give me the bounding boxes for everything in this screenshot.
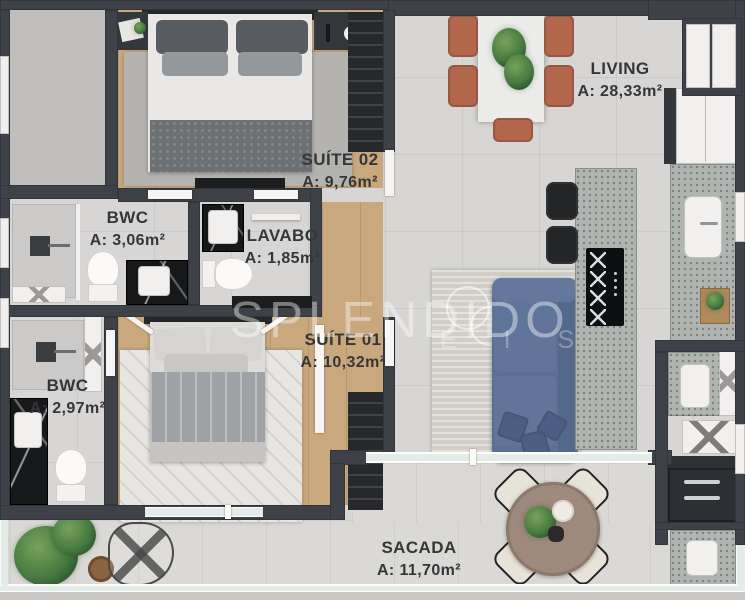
fridge bbox=[676, 88, 736, 164]
suite02-pillow-small bbox=[162, 52, 228, 76]
bwc-bottom-door bbox=[106, 330, 115, 376]
clothes-rack-bar bbox=[684, 480, 720, 484]
entry-door-panel bbox=[712, 24, 736, 88]
wall bbox=[0, 185, 118, 199]
suite02-area: A: 9,76m² bbox=[285, 172, 395, 194]
balcony-plant-small bbox=[52, 514, 96, 556]
wall bbox=[655, 340, 745, 352]
suite02-wardrobe bbox=[348, 12, 383, 152]
barbecue-sink bbox=[686, 540, 718, 576]
nightstand-decor bbox=[326, 24, 330, 42]
window bbox=[0, 298, 9, 348]
window bbox=[0, 218, 9, 268]
window bbox=[735, 192, 745, 242]
watermark-partial-text: E I S bbox=[440, 326, 594, 355]
bwc-top-name: BWC bbox=[75, 206, 180, 230]
toilet bbox=[86, 250, 120, 288]
table-plate bbox=[552, 500, 574, 522]
toilet-tank bbox=[88, 284, 118, 302]
wall bbox=[655, 522, 745, 530]
suite01-folded-blanket bbox=[150, 442, 265, 462]
shower-arm-2 bbox=[54, 350, 76, 353]
wall bbox=[188, 202, 200, 305]
balcony-railing-left bbox=[0, 520, 8, 586]
sacada-area: A: 11,70m² bbox=[360, 560, 478, 582]
dining-chair bbox=[448, 65, 478, 107]
entry-door-panel bbox=[686, 24, 710, 88]
label-bwc-bottom: BWC A: 2,97m² bbox=[15, 374, 120, 420]
dining-chair bbox=[493, 118, 533, 142]
suite01-door-handle bbox=[225, 505, 231, 519]
dining-plant bbox=[504, 54, 534, 90]
suite01-balcony-door bbox=[145, 507, 263, 517]
lavabo-name: LAVABO bbox=[230, 224, 335, 248]
burner bbox=[590, 309, 606, 325]
dining-chair bbox=[448, 15, 478, 57]
label-lavabo: LAVABO A: 1,85m² bbox=[230, 224, 335, 270]
wall bbox=[648, 0, 745, 20]
suite02-pillow bbox=[236, 20, 308, 54]
burner bbox=[590, 290, 606, 306]
clothes-rack-closet bbox=[668, 468, 738, 522]
neighbor-unit-area bbox=[0, 0, 118, 199]
kitchen-faucet bbox=[700, 222, 718, 225]
suite02-pillow-small bbox=[238, 52, 302, 76]
suite01-cushions bbox=[164, 354, 248, 374]
vanity-sink bbox=[138, 266, 170, 296]
shower-head bbox=[30, 236, 50, 256]
laundry-sink bbox=[680, 364, 710, 408]
dining-chair bbox=[544, 15, 574, 57]
clothes-rack-bar bbox=[684, 496, 720, 500]
label-suite02: SUÍTE 02 A: 9,76m² bbox=[285, 148, 395, 194]
wall bbox=[388, 0, 650, 16]
bar-stool bbox=[546, 226, 578, 264]
toilet-tank-2 bbox=[56, 484, 86, 502]
fridge-door-split bbox=[705, 90, 706, 162]
living-name: LIVING bbox=[560, 57, 680, 81]
cooktop-knobs bbox=[614, 272, 617, 275]
sacada-name: SACADA bbox=[360, 536, 478, 560]
living-area: A: 28,33m² bbox=[560, 81, 680, 103]
toilet-2 bbox=[54, 448, 88, 486]
sliding-door-handle bbox=[470, 449, 476, 465]
table-decor bbox=[548, 526, 564, 542]
ironing-board bbox=[719, 346, 736, 416]
balcony-edge bbox=[0, 592, 745, 600]
wall bbox=[105, 10, 118, 192]
suite01-area: A: 10,32m² bbox=[288, 352, 398, 374]
bwc-top-door bbox=[148, 190, 192, 199]
window bbox=[0, 56, 9, 134]
wall bbox=[655, 352, 668, 545]
burner bbox=[590, 271, 606, 287]
label-sacada: SACADA A: 11,70m² bbox=[360, 536, 478, 582]
bwc-bottom-name: BWC bbox=[15, 374, 120, 398]
shower-arm bbox=[48, 244, 70, 247]
towel-bar bbox=[252, 214, 300, 220]
window bbox=[735, 424, 745, 474]
suite02-name: SUÍTE 02 bbox=[285, 148, 395, 172]
kitchen-sink bbox=[684, 196, 722, 258]
wall bbox=[330, 463, 345, 520]
bwc-top-area: A: 3,06m² bbox=[75, 230, 180, 252]
bwc-bottom-area: A: 2,97m² bbox=[15, 398, 120, 420]
sliding-glass-door bbox=[366, 452, 652, 463]
burner bbox=[590, 252, 606, 268]
suite01-duvet bbox=[150, 372, 265, 444]
nightstand-plant bbox=[134, 22, 146, 34]
label-living: LIVING A: 28,33m² bbox=[560, 57, 680, 103]
shower-drain-grate bbox=[12, 286, 66, 303]
balcony-railing-right bbox=[736, 545, 745, 586]
balcony-railing bbox=[0, 584, 745, 592]
shower-head-2 bbox=[36, 342, 56, 362]
lavabo-area: A: 1,85m² bbox=[230, 248, 335, 270]
wall bbox=[383, 10, 395, 152]
suite02-pillow bbox=[156, 20, 228, 54]
washer bbox=[682, 420, 736, 454]
bar-stool bbox=[546, 182, 578, 220]
label-bwc-top: BWC A: 3,06m² bbox=[75, 206, 180, 252]
herbs bbox=[706, 292, 724, 310]
floor-plan: LIVING A: 28,33m² SUÍTE 02 A: 9,76m² BWC… bbox=[0, 0, 745, 600]
